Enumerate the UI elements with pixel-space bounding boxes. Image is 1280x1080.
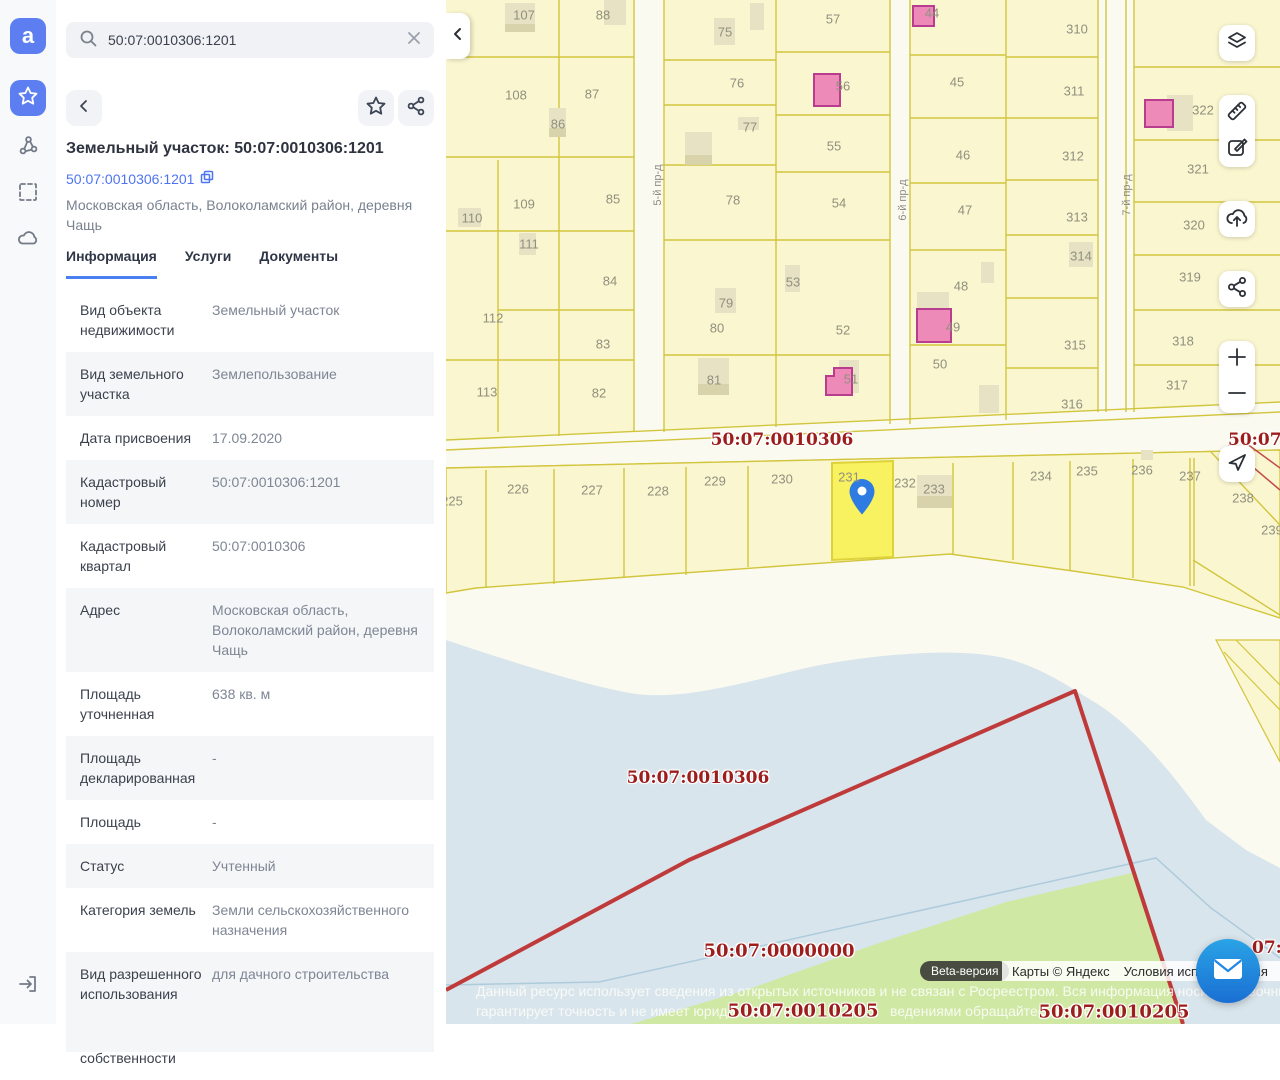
layers-icon xyxy=(1225,29,1249,58)
favorite-button[interactable] xyxy=(358,90,394,126)
table-row: Площадь- xyxy=(66,800,434,844)
parcel-number[interactable]: 109 xyxy=(513,197,535,212)
parcel-number[interactable]: 233 xyxy=(923,482,945,497)
parcel-number[interactable]: 235 xyxy=(1076,464,1098,479)
parcel-number[interactable]: 311 xyxy=(1064,84,1085,99)
table-row: Категория земельЗемли сельскохозяйственн… xyxy=(66,888,434,952)
sidebar-item-area-select[interactable] xyxy=(10,176,46,212)
parcel-number[interactable]: 47 xyxy=(958,203,972,218)
info-panel: 50:07:0010306:1201 Земельный участок: 50… xyxy=(56,0,446,1024)
search-bar[interactable]: 50:07:0010306:1201 xyxy=(66,22,434,58)
row-value: 638 кв. м xyxy=(212,680,420,728)
cloud-upload-icon xyxy=(1224,204,1250,235)
parcel-number[interactable]: 113 xyxy=(477,385,498,400)
table-row: Площадь декларированная- xyxy=(66,736,434,800)
selection-square-icon xyxy=(16,180,40,209)
map-base-graphics xyxy=(446,0,1280,1024)
parcel-number[interactable]: 230 xyxy=(771,472,793,487)
parcel-number[interactable]: 85 xyxy=(606,192,620,207)
parcel-number[interactable]: 56 xyxy=(836,79,850,94)
row-value: - xyxy=(212,744,420,792)
parcel-number[interactable]: 227 xyxy=(581,483,603,498)
parcel-number[interactable]: 238 xyxy=(1232,491,1254,506)
search-input[interactable]: 50:07:0010306:1201 xyxy=(108,32,406,48)
parcel-number[interactable]: 316 xyxy=(1061,397,1083,412)
sidebar-item-cloud[interactable] xyxy=(10,222,46,258)
chat-button[interactable] xyxy=(1196,939,1260,1003)
cadastral-number-link[interactable]: 50:07:0010306:1201 xyxy=(66,171,194,187)
row-label: Статус xyxy=(80,852,212,880)
row-label: Адрес xyxy=(80,596,212,664)
row-label: Площадь xyxy=(80,808,212,836)
layers-button[interactable] xyxy=(1219,25,1255,61)
cloud-icon xyxy=(15,225,41,256)
back-button[interactable] xyxy=(66,90,102,126)
table-row: Вид разрешенного использованиядля дачног… xyxy=(66,952,434,1016)
info-table: Вид объекта недвижимостиЗемельный участо… xyxy=(66,288,434,1080)
search-icon xyxy=(78,28,98,53)
parcel-number[interactable]: 236 xyxy=(1131,463,1153,478)
parcel-number[interactable]: 318 xyxy=(1172,334,1194,349)
parcel-number[interactable]: 83 xyxy=(596,337,610,352)
cadastral-quarter-label: 50:07:0010205 xyxy=(1038,1002,1189,1023)
network-icon xyxy=(16,134,40,163)
draw-button[interactable] xyxy=(1219,131,1255,167)
star-outline-icon xyxy=(365,95,387,122)
parcel-number[interactable]: 107 xyxy=(513,8,535,23)
parcel-number[interactable]: 319 xyxy=(1179,270,1201,285)
locate-me-button[interactable] xyxy=(1219,446,1255,482)
clear-search-icon[interactable] xyxy=(406,30,422,51)
table-row: Кадастровый номер50:07:0010306:1201 xyxy=(66,460,434,524)
parcel-number[interactable]: 80 xyxy=(710,321,724,336)
table-row: Вид земельного участкаЗемлепользование xyxy=(66,352,434,416)
road-name-label: 6-й пр-д xyxy=(897,179,909,220)
parcel-number[interactable]: 88 xyxy=(596,8,610,23)
parcel-number[interactable]: 55 xyxy=(827,139,841,154)
parcel-number[interactable]: 312 xyxy=(1062,149,1084,164)
parcel-number[interactable]: 237 xyxy=(1179,469,1201,484)
parcel-number[interactable]: 57 xyxy=(826,12,840,27)
parcel-number[interactable]: 87 xyxy=(585,87,599,102)
parcel-number[interactable]: 239 xyxy=(1261,523,1280,538)
parcel-number[interactable]: 49 xyxy=(946,320,960,335)
parcel-number[interactable]: 232 xyxy=(894,476,916,491)
row-value: Землепользование xyxy=(212,360,420,408)
minus-icon xyxy=(1226,382,1248,409)
parcel-number[interactable]: 314 xyxy=(1070,249,1092,264)
road-name-label: 5-й пр-д xyxy=(652,164,664,205)
row-label: Площадь декларированная xyxy=(80,744,212,792)
sidebar-item-favorites[interactable] xyxy=(10,80,46,116)
map-share-button[interactable] xyxy=(1219,271,1255,307)
table-row: СтатусУчтенный xyxy=(66,844,434,888)
parcel-number[interactable]: 45 xyxy=(950,75,964,90)
parcel-number[interactable]: 51 xyxy=(844,372,858,387)
sidebar-item-layers-graph[interactable] xyxy=(10,130,46,166)
cadastral-quarter-label: 50:07:0010306 xyxy=(711,430,854,450)
parcel-number[interactable]: 52 xyxy=(836,323,850,338)
star-icon xyxy=(17,85,39,112)
parcel-number[interactable]: 44 xyxy=(925,6,939,21)
zoom-out-button[interactable] xyxy=(1219,377,1255,413)
parcel-number[interactable]: 322 xyxy=(1192,103,1214,118)
chevron-left-icon xyxy=(450,26,466,47)
parcel-number[interactable]: 320 xyxy=(1183,218,1205,233)
cadastral-quarter-label: 50:07:0010306 xyxy=(627,768,770,788)
parcel-number[interactable]: 76 xyxy=(730,76,744,91)
parcel-number[interactable]: 82 xyxy=(592,386,606,401)
tab-services[interactable]: Услуги xyxy=(185,248,232,279)
row-value: Учтенный xyxy=(212,852,420,880)
table-row: Площадь уточненная638 кв. м xyxy=(66,672,434,736)
page-title: Земельный участок: 50:07:0010306:1201 xyxy=(66,140,436,158)
parcel-number[interactable]: 111 xyxy=(519,237,539,252)
parcel-number[interactable]: 315 xyxy=(1064,338,1086,353)
tab-documents[interactable]: Документы xyxy=(259,248,338,279)
parcel-number[interactable]: 84 xyxy=(603,274,617,289)
icon-rail: a xyxy=(0,0,56,1024)
app-logo[interactable]: a xyxy=(10,18,46,54)
map-canvas[interactable]: 1078810887861091108511184112831138275577… xyxy=(446,0,1280,1024)
cadastral-quarter-label: 50:07:0000000 xyxy=(703,941,854,962)
row-label: Вид объекта недвижимости xyxy=(80,296,212,344)
chevron-left-icon xyxy=(76,98,92,119)
parcel-number[interactable]: 81 xyxy=(707,373,721,388)
share-button[interactable] xyxy=(398,90,434,126)
row-label: Кадастровый квартал xyxy=(80,532,212,580)
table-row: Кадастровый квартал50:07:0010306 xyxy=(66,524,434,588)
row-value: Земли сельскохозяйственного назначения xyxy=(212,896,420,944)
parcel-number[interactable]: 54 xyxy=(832,196,846,211)
row-value: для дачного строительства xyxy=(212,960,420,1008)
parcel-number[interactable]: 77 xyxy=(743,120,757,135)
zoom-in-button[interactable] xyxy=(1219,341,1255,377)
row-value: - xyxy=(212,808,420,836)
table-row: Дата присвоения17.09.2020 xyxy=(66,416,434,460)
parcel-number[interactable]: 228 xyxy=(647,484,669,499)
parcel-number[interactable]: 313 xyxy=(1066,210,1088,225)
collapse-panel-button[interactable] xyxy=(446,13,470,59)
tab-information[interactable]: Информация xyxy=(66,248,157,279)
row-label: Площадь уточненная xyxy=(80,680,212,728)
row-value: Земельный участок xyxy=(212,296,420,344)
parcel-number[interactable]: 48 xyxy=(954,279,968,294)
parcel-number[interactable]: 226 xyxy=(507,482,529,497)
row-label: Кадастровый номер xyxy=(80,468,212,516)
row-value: Московская область, Волоколамский район,… xyxy=(212,596,420,664)
parcel-number[interactable]: 78 xyxy=(726,193,740,208)
parcel-number[interactable]: 321 xyxy=(1187,162,1209,177)
parcel-number[interactable]: 310 xyxy=(1066,22,1088,37)
parcel-number[interactable]: 53 xyxy=(786,275,800,290)
envelope-icon xyxy=(1213,957,1243,986)
share-icon xyxy=(405,95,427,122)
plus-icon xyxy=(1226,346,1248,373)
parcel-number[interactable]: 317 xyxy=(1166,378,1188,393)
parcel-number[interactable]: 46 xyxy=(956,148,970,163)
sidebar-item-login[interactable] xyxy=(10,968,46,1004)
disclaimer-line1: Данный ресурс использует сведения из отк… xyxy=(476,983,1280,999)
parcel-number[interactable]: 108 xyxy=(505,88,527,103)
measure-button[interactable] xyxy=(1219,95,1255,131)
table-row xyxy=(66,1012,434,1052)
row-label: Категория земель xyxy=(80,896,212,944)
share-icon xyxy=(1225,275,1249,304)
table-row: АдресМосковская область, Волоколамский р… xyxy=(66,588,434,672)
row-value: 50:07:0010306:1201 xyxy=(212,468,420,516)
row-label: Вид земельного участка xyxy=(80,360,212,408)
parcel-number[interactable]: 229 xyxy=(704,474,726,489)
parcel-number[interactable]: 225 xyxy=(446,494,463,509)
parcel-number[interactable]: 231 xyxy=(838,470,860,485)
exit-arrow-icon xyxy=(16,972,40,1001)
parcel-number[interactable]: 50 xyxy=(933,357,947,372)
parcel-number[interactable]: 75 xyxy=(718,25,732,40)
parcel-number[interactable]: 86 xyxy=(551,117,565,132)
ruler-icon xyxy=(1225,99,1249,128)
tab-bar: Информация Услуги Документы xyxy=(66,248,338,279)
table-row: Вид объекта недвижимостиЗемельный участо… xyxy=(66,288,434,352)
object-address: Московская область, Волоколамский район,… xyxy=(66,195,416,235)
cadastral-quarter-label: 50:07:0010205 xyxy=(727,1001,878,1022)
parcel-number[interactable]: 112 xyxy=(483,311,504,326)
upload-button[interactable] xyxy=(1219,201,1255,237)
map-copyright: Карты © Яндекс xyxy=(1012,964,1110,979)
row-label: Дата присвоения xyxy=(80,424,212,452)
parcel-number[interactable]: 79 xyxy=(719,296,733,311)
navigation-arrow-icon xyxy=(1225,450,1249,479)
road-name-label: 7-й пр-д xyxy=(1121,174,1133,215)
parcel-number[interactable]: 234 xyxy=(1030,469,1052,484)
row-value: 17.09.2020 xyxy=(212,424,420,452)
row-label: Вид разрешенного использования xyxy=(80,960,212,1008)
row-value: 50:07:0010306 xyxy=(212,532,420,580)
copy-icon[interactable] xyxy=(200,170,214,187)
beta-badge: Beta-версия xyxy=(920,961,1009,981)
parcel-number[interactable]: 110 xyxy=(462,211,483,226)
edit-icon xyxy=(1225,135,1249,164)
